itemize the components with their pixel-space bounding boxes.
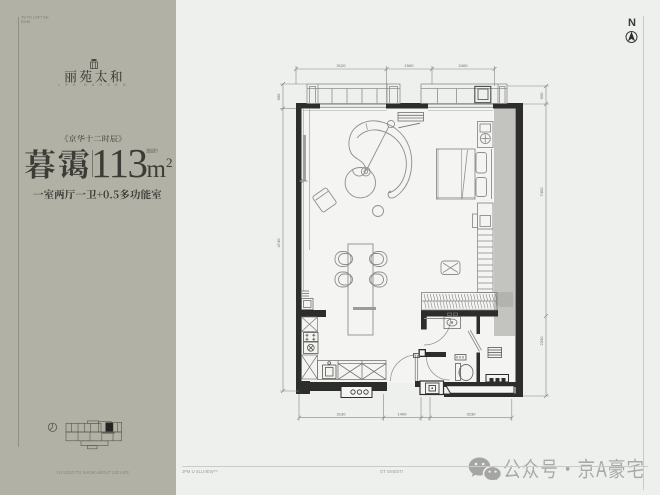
svg-text:4740: 4740 [276,238,281,248]
svg-text:1500: 1500 [405,63,415,68]
svg-text:3130: 3130 [337,412,347,417]
svg-text:1400: 1400 [398,412,408,417]
svg-text:7450: 7450 [539,187,544,197]
svg-text:600: 600 [276,93,281,100]
svg-text:2400: 2400 [459,63,469,68]
svg-text:600: 600 [539,92,544,99]
svg-text:3230: 3230 [467,412,477,417]
svg-text:3120: 3120 [337,63,347,68]
svg-text:2330: 2330 [539,336,544,346]
